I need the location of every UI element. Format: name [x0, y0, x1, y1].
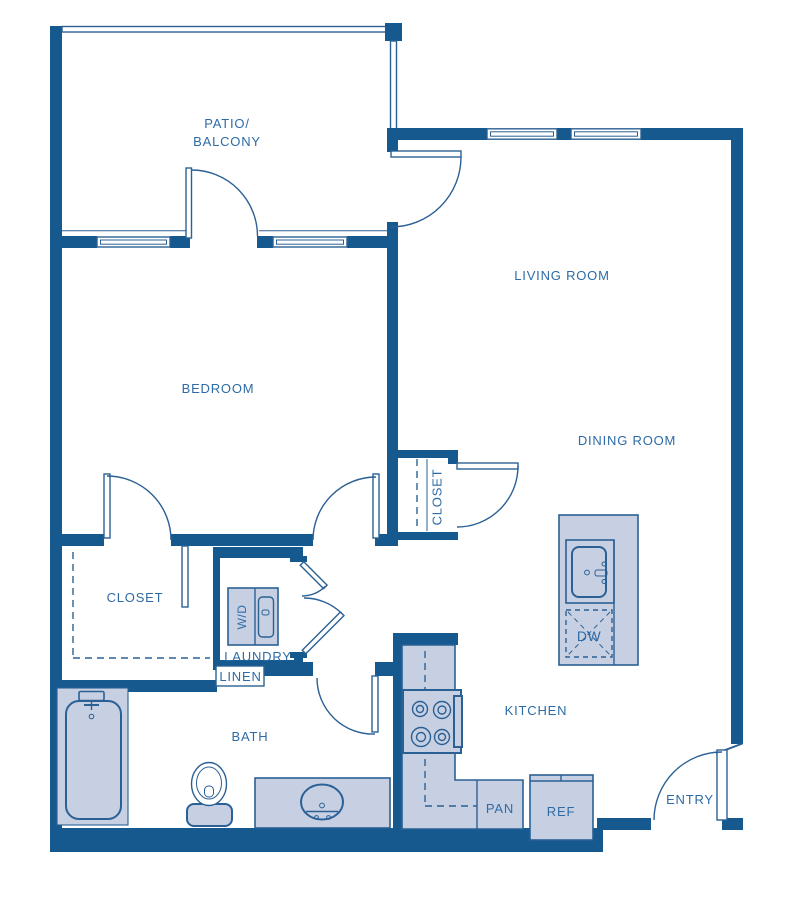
floor-plan-svg: PATIO/ BALCONY LIVING ROOM BEDROOM DININ…: [0, 0, 787, 900]
bedroom-south-wall-a: [50, 534, 104, 546]
hall-closet-bottom-wall: [395, 532, 458, 540]
laundry-stub-foot-top: [290, 556, 307, 562]
bedroom-closet-label: CLOSET: [107, 590, 164, 605]
hall-closet-door-stub: [448, 450, 458, 464]
dining-room-label: DINING ROOM: [578, 433, 676, 448]
living-top-wall-right: [641, 128, 743, 140]
bottom-wall-main: [50, 828, 603, 852]
living-room-label: LIVING ROOM: [514, 268, 609, 283]
bedroom-window-2: [273, 237, 347, 247]
washer-dryer-label: W/D: [235, 605, 249, 630]
laundry-left-wall: [213, 547, 220, 668]
windows: [97, 129, 641, 247]
living-left-wall-stub: [387, 140, 398, 152]
patio-label-line2: BALCONY: [193, 134, 261, 149]
patio-corner-post: [385, 23, 402, 41]
linen-label: LINEN: [219, 669, 261, 684]
patio-door: [186, 168, 258, 238]
closet-partition: [182, 546, 188, 607]
patio-right-railing: [391, 41, 397, 129]
entry-label: ENTRY: [666, 792, 714, 807]
kitchen-top-wall: [393, 633, 458, 645]
bathtub: [57, 688, 128, 825]
pantry-label: PAN: [486, 801, 514, 816]
floor-plan-page: PATIO/ BALCONY LIVING ROOM BEDROOM DININ…: [0, 0, 787, 900]
living-top-wall-left: [387, 128, 487, 140]
patio-bottom-wall-c: [257, 236, 273, 248]
laundry-top-wall: [213, 547, 303, 558]
bedroom-closet-door: [104, 474, 171, 540]
stove: [403, 690, 462, 753]
refrigerator-label: REF: [547, 804, 575, 819]
laundry-double-doors: [300, 562, 344, 654]
bottom-wall-entry-left: [597, 818, 651, 830]
bedroom-living-wall: [387, 222, 398, 540]
bath-label: BATH: [232, 729, 269, 744]
patio-top-railing: [62, 27, 388, 33]
kitchen-label: KITCHEN: [505, 703, 568, 718]
patio-bottom-wall-a: [50, 236, 97, 248]
hall-closet-door: [457, 463, 518, 527]
bedroom-label: BEDROOM: [182, 381, 255, 396]
right-outer-wall: [731, 128, 743, 744]
hall-closet-label: CLOSET: [430, 469, 445, 526]
bedroom-window-1: [97, 237, 170, 247]
hall-closet-interior: [417, 459, 427, 531]
kitchen-left-wall: [393, 633, 402, 830]
bath-top-wall-mid: [264, 662, 313, 676]
bedroom-south-wall-b: [171, 534, 313, 546]
dishwasher-label: DW: [577, 628, 602, 644]
living-room-window-1: [487, 129, 557, 139]
living-room-patio-door: [391, 151, 461, 227]
bath-door: [317, 676, 378, 734]
living-top-wall-mid: [557, 128, 571, 140]
bedroom-door: [313, 474, 379, 540]
bath-vanity: [255, 778, 390, 828]
entry-door: [654, 750, 727, 820]
patio-label-line1: PATIO/: [204, 116, 250, 131]
laundry-label: LAUNDRY: [224, 649, 292, 664]
living-room-window-2: [571, 129, 641, 139]
toilet: [187, 763, 232, 827]
